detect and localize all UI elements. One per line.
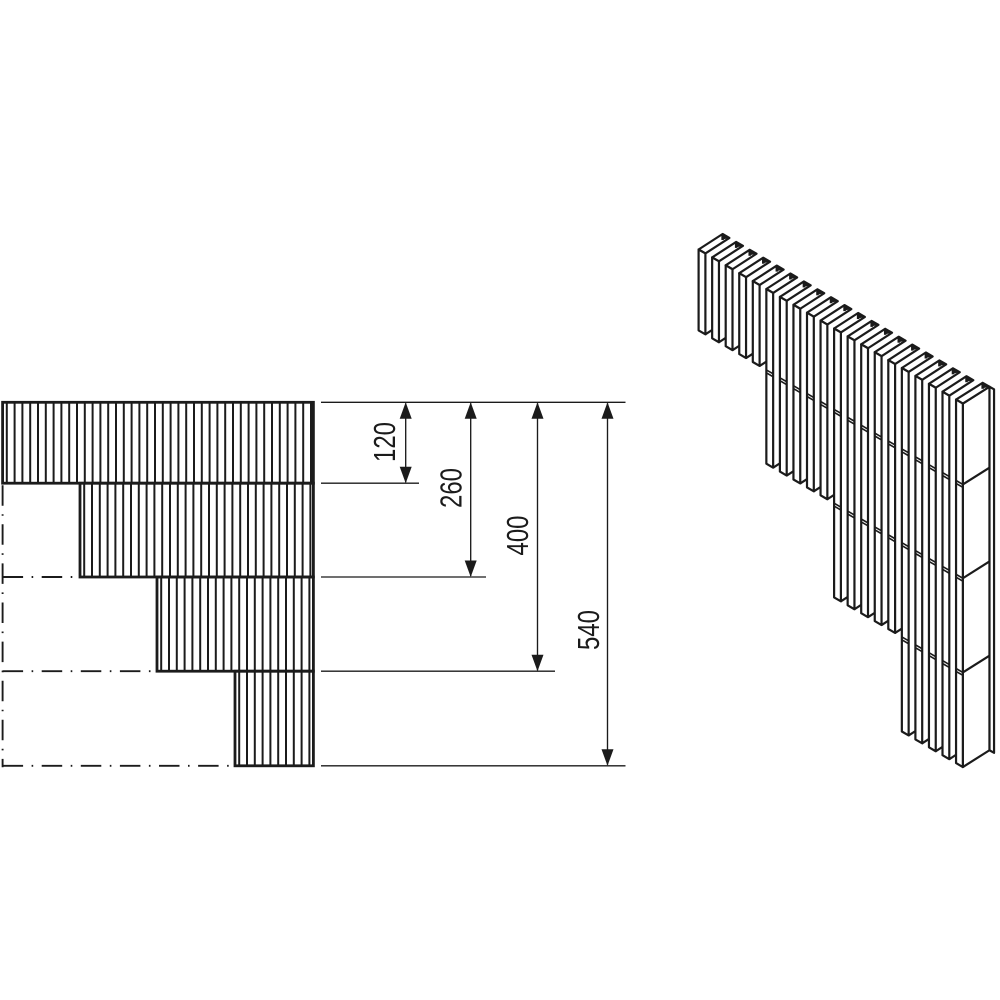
svg-text:260: 260 bbox=[434, 468, 469, 508]
svg-text:120: 120 bbox=[367, 422, 402, 462]
svg-text:400: 400 bbox=[500, 516, 535, 556]
svg-text:540: 540 bbox=[571, 610, 606, 650]
